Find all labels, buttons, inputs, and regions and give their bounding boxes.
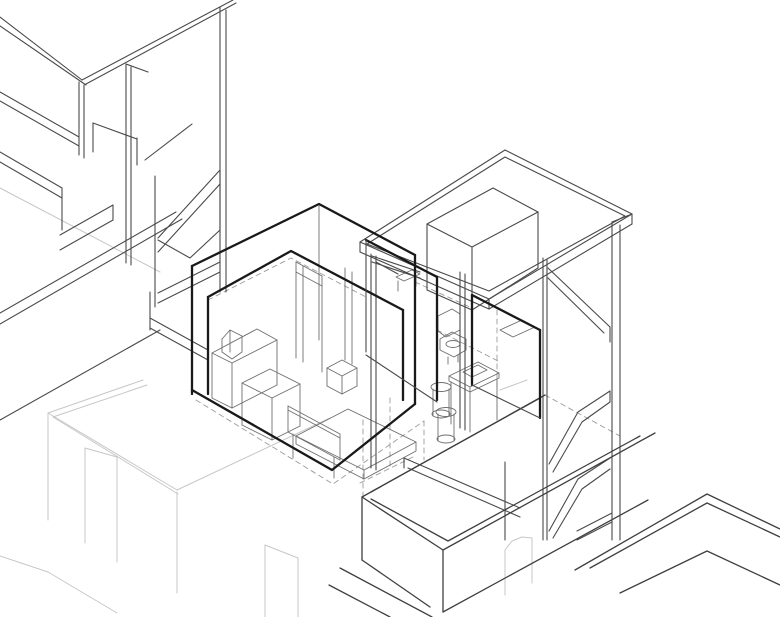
- center-roof-parapet-inner-n: [371, 398, 540, 492]
- center-roof-wall-base-s: [443, 500, 648, 612]
- lower-volume-door2-head: [265, 545, 298, 558]
- bath-niche-shelf: [500, 320, 535, 337]
- roof-box-top-far: [427, 188, 538, 224]
- bath-glass-panel-b-top: [472, 295, 540, 330]
- bed-mattress-band-left: [296, 436, 364, 479]
- drawing-page: [0, 0, 780, 617]
- room-wall-top-rim-inner: [208, 251, 403, 310]
- stair-railing-steep: [158, 184, 220, 252]
- axonometric-drawing: [0, 0, 780, 617]
- lower-volume-wall-base-return: [48, 572, 117, 613]
- left-wing-band-2a: [0, 152, 62, 188]
- left-tower-roof-edge-ne-inner: [86, 3, 236, 84]
- roof-slab-edge-nw: [360, 150, 505, 242]
- small-box-top: [327, 360, 357, 376]
- right-tower-railing-upper-2: [548, 278, 604, 333]
- lower-volume-door-head: [85, 448, 117, 457]
- lower-volume-roof-edge-sw-inner: [53, 417, 178, 494]
- bath-floor-edge-2: [408, 468, 520, 517]
- bath-floor-edge-1: [404, 458, 520, 508]
- stair-railing-top: [93, 123, 137, 139]
- lower-volume-wall-base: [0, 556, 48, 572]
- toilet-seat: [446, 341, 460, 348]
- monitor-on-cabinet: [222, 330, 242, 359]
- slab-underside-light-line: [500, 380, 527, 390]
- center-roof-wall-base-w: [362, 560, 430, 607]
- stair-band-lower-1: [158, 262, 220, 293]
- lower-left-parapet-1: [340, 568, 432, 617]
- left-wing-band-1b: [0, 101, 79, 146]
- right-tower-railing-upper-1: [548, 268, 610, 327]
- side-table-top: [242, 369, 300, 398]
- left-parapet-return-2: [150, 328, 208, 360]
- bed-headboard-top: [288, 406, 340, 434]
- left-tower-roof-edge-nw: [0, 17, 82, 80]
- stair-railing-left-1: [60, 205, 113, 235]
- bottom-right-parapet-inner: [590, 503, 780, 568]
- left-tower-roof-edge-ne: [82, 0, 233, 80]
- center-roof-parapet-edge-se: [443, 433, 655, 550]
- lower-volume-roof-edge-sw: [48, 413, 177, 490]
- bath-glass-panel-a-base: [366, 355, 437, 402]
- lower-volume-roof-edge-se: [177, 418, 330, 490]
- stair-railing-left-2: [60, 220, 113, 250]
- stool2-base: [437, 435, 455, 443]
- roof-slab-curb: [367, 157, 625, 291]
- stool2-seat: [436, 408, 456, 417]
- bath-table-top: [449, 362, 499, 387]
- roof-slab-fascia-se: [489, 224, 632, 309]
- center-roof-parapet-edge-ws: [362, 497, 443, 550]
- right-tower-stair-band-a2: [553, 402, 610, 472]
- cabinet-base-right: [232, 385, 277, 408]
- arched-door-head: [505, 537, 532, 550]
- stair-railing-mid: [145, 124, 192, 160]
- bottom-right-parapet-base: [620, 551, 780, 593]
- right-tower-wall-top-link: [612, 214, 632, 222]
- stool1-seat: [431, 383, 451, 392]
- roof-slab-fascia-sw: [360, 252, 489, 309]
- side-table-base: [242, 425, 300, 440]
- left-tower-frame-head: [126, 64, 148, 72]
- bath-table-basin: [463, 365, 487, 377]
- stair-opening-upper: [158, 170, 220, 258]
- lower-volume-hidden-wall-line: [0, 188, 160, 272]
- roof-hidden-edge-dashed: [545, 395, 620, 436]
- right-tower-stair-band-c2: [577, 522, 612, 540]
- left-wing-band-1a: [0, 92, 79, 137]
- bath-hidden-edge-dashed: [415, 282, 472, 308]
- toilet-tank: [438, 309, 460, 337]
- left-parapet-base: [0, 330, 160, 420]
- right-tower-stair-band-a1: [549, 391, 610, 464]
- lower-volume-roof-edge-nw-inner: [53, 385, 147, 417]
- roof-box-top-near: [427, 212, 538, 247]
- hidden-floor-diagonal-dashed: [360, 457, 413, 483]
- bath-glass-panel-b-base: [472, 385, 540, 418]
- left-tower-roof-edge-nw-inner: [0, 26, 86, 85]
- left-parapet-return-1: [150, 318, 208, 350]
